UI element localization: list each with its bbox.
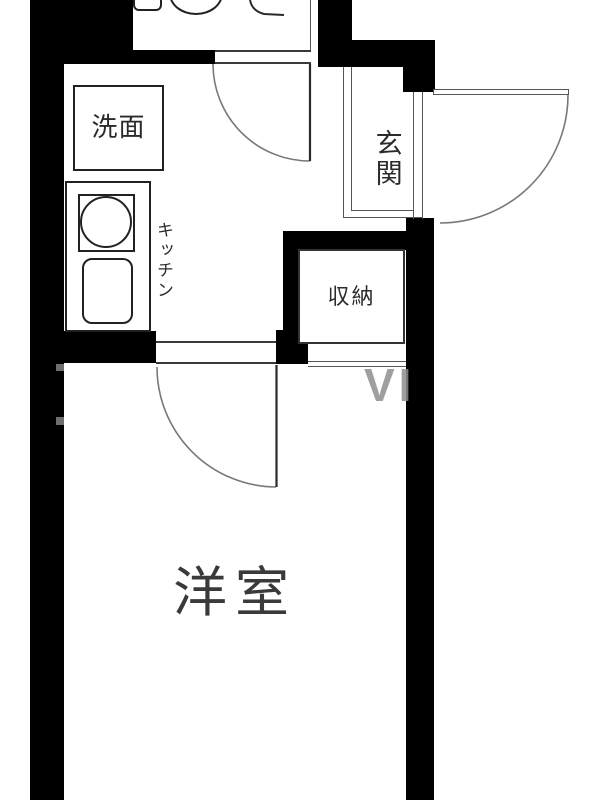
washroom-label: 洗面 [73,85,164,171]
wall-storage-top [283,231,406,250]
bathroom-door-arc [213,64,310,161]
wall-top-left-block [30,0,133,50]
wall-kitchen-bottom [60,331,156,363]
bathroom-right-edge-line [310,0,312,50]
bathtub-corner-icon [250,0,284,15]
entrance-door-frame [413,92,423,219]
watermark-fragment [56,364,64,371]
wall-storage-left [283,250,299,345]
toilet-bowl-icon [169,0,223,15]
kitchen-label: キッチン [149,211,177,311]
watermark-text: VI [364,358,415,412]
entrance-door-leaf [433,89,569,95]
entrance-door-arc [440,95,568,223]
toilet-tank-icon [133,0,162,11]
main-room-doorway [156,341,276,364]
main-room-label: 洋室 [64,553,406,633]
entrance-label: 玄関 [371,126,402,192]
stove-burner-icon [80,196,132,248]
wall-top-right-horizontal [350,40,435,67]
floor-plan: 洗面 キッチン 玄関 収納 洋室 VI [0,0,600,800]
watermark-fragment [56,417,64,425]
wall-bathroom-bottom [30,50,215,64]
bathroom-doorway [215,50,311,64]
storage-label: 収納 [298,249,405,344]
main-room-door-arc [157,367,276,487]
kitchen-sink-icon [82,258,133,324]
wall-right-outer [406,218,434,800]
wall-top-right-vertical [318,0,352,67]
wall-left-outer [30,0,64,800]
